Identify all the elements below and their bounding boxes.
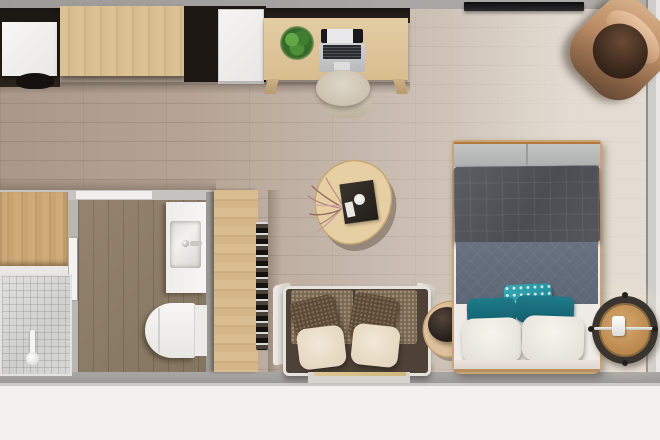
hand-shower-head [26, 352, 39, 365]
floorplan-canvas [0, 0, 660, 440]
headboard [454, 360, 600, 372]
bathroom-door-header [76, 191, 152, 199]
pillow-white [521, 315, 585, 362]
nightstand-leg [622, 292, 628, 298]
clothes-hangers [256, 222, 268, 350]
kitchen-counter [2, 22, 57, 76]
coffee-table-group [302, 150, 418, 266]
wall-tv [464, 2, 584, 11]
nightstand-leg [652, 326, 658, 332]
laptop-screen [321, 29, 363, 43]
faucet [182, 240, 189, 247]
sofa [281, 280, 427, 376]
pillow-white [461, 317, 522, 364]
nightstand-lamp [612, 316, 625, 336]
cup [354, 194, 365, 205]
stool [16, 73, 54, 89]
nightstand [592, 296, 658, 364]
desk-chair [316, 70, 370, 106]
sofa-pillow-cream [296, 324, 348, 370]
duvet-charcoal [454, 165, 601, 244]
bathroom-wall-sliver [0, 266, 68, 274]
wardrobe-top [60, 6, 186, 76]
potted-plant [280, 26, 314, 60]
nightstand-chrome-bar [594, 327, 656, 330]
nightstand-leg [588, 326, 594, 332]
toilet [145, 303, 196, 358]
bench-seam [526, 144, 528, 165]
toilet-tank [194, 305, 207, 356]
bed [452, 140, 602, 374]
outside-background [0, 383, 660, 440]
laptop-keyboard [323, 45, 361, 59]
sofa-pillow-cream [350, 323, 401, 369]
nightstand-leg [622, 360, 628, 366]
bathroom-cabinet [0, 192, 68, 266]
faucet-spout [190, 241, 202, 246]
window-sill [314, 372, 406, 376]
closet [214, 190, 258, 372]
toilet-seam [158, 308, 160, 353]
mini-fridge [218, 9, 264, 84]
laptop-trackpad [334, 62, 350, 70]
